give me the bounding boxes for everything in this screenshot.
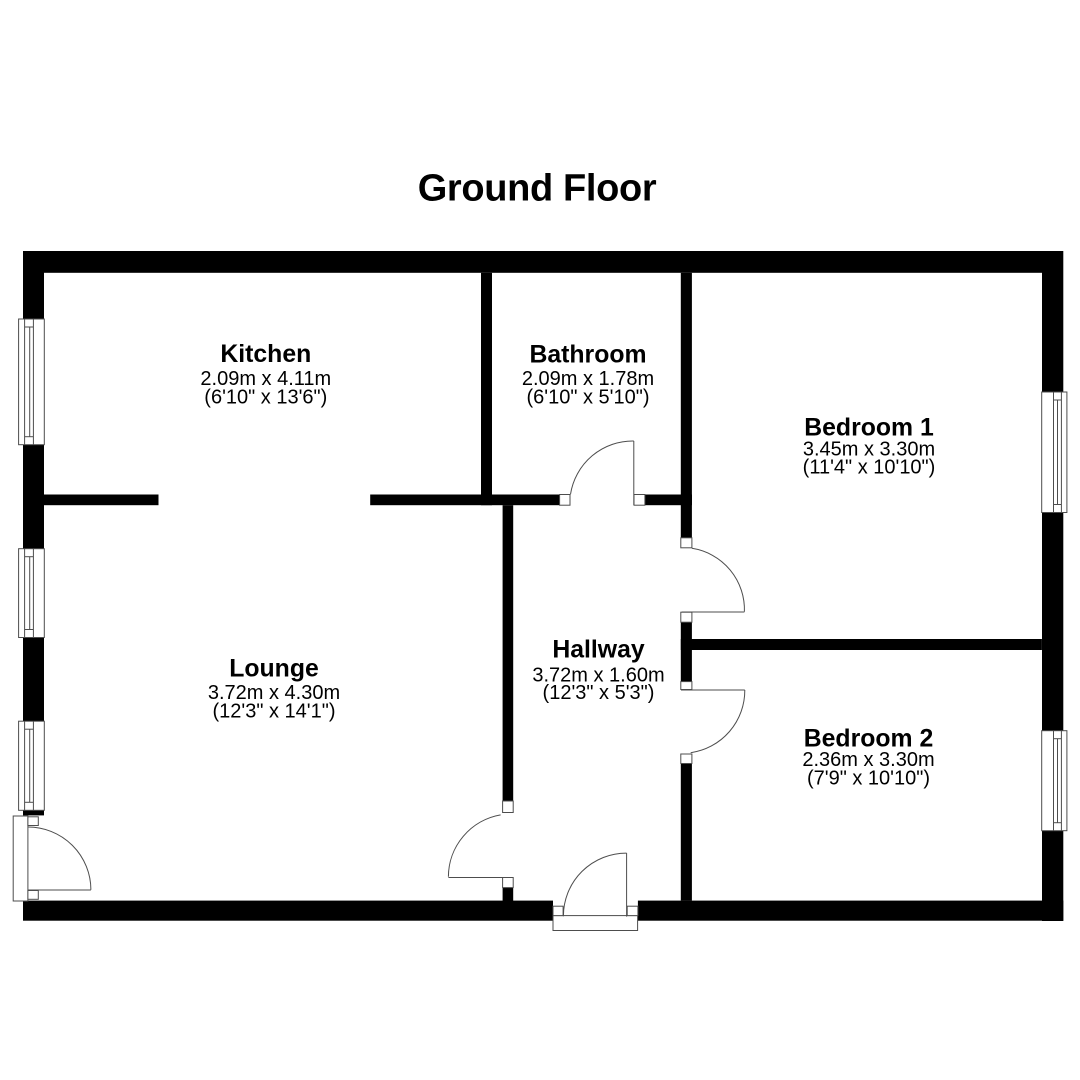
svg-text:(6'10" x 13'6"): (6'10" x 13'6") bbox=[204, 387, 327, 409]
svg-text:Hallway: Hallway bbox=[552, 637, 645, 664]
svg-text:(7'9" x 10'10"): (7'9" x 10'10") bbox=[807, 768, 930, 790]
svg-text:(12'3" x 5'3"): (12'3" x 5'3") bbox=[543, 682, 655, 704]
svg-text:(12'3" x 14'1"): (12'3" x 14'1") bbox=[212, 701, 335, 723]
svg-text:Lounge: Lounge bbox=[229, 656, 319, 683]
svg-text:Bedroom 1: Bedroom 1 bbox=[804, 415, 934, 442]
svg-text:Kitchen: Kitchen bbox=[220, 341, 311, 368]
svg-text:Bathroom: Bathroom bbox=[529, 342, 646, 369]
svg-text:Ground Floor: Ground Floor bbox=[418, 167, 657, 209]
svg-text:(6'10" x 5'10"): (6'10" x 5'10") bbox=[526, 387, 649, 409]
svg-text:(11'4" x 10'10"): (11'4" x 10'10") bbox=[803, 457, 936, 479]
